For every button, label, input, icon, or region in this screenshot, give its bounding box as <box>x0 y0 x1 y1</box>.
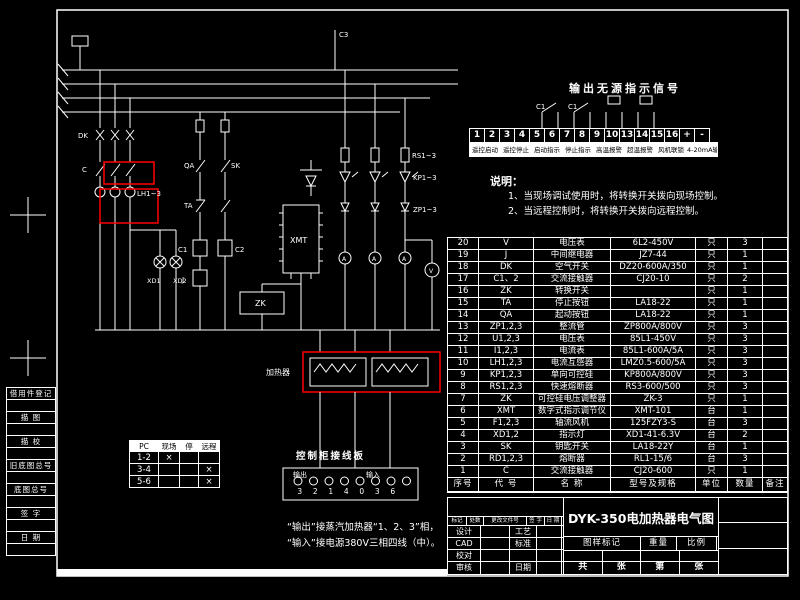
label-c2: C2 <box>235 246 244 254</box>
cell-unit: 只 <box>696 322 728 334</box>
field-audit: 审核 <box>448 562 481 574</box>
signal-contact-symbols <box>542 96 654 128</box>
title-block-row: CAD 标准 <box>448 538 563 550</box>
cell-index: 5 <box>448 418 479 430</box>
cell-name: 快速熔断器 <box>534 382 611 394</box>
cell-qty: 1 <box>728 406 763 418</box>
label-voltmeter: V <box>429 268 434 275</box>
terminal-number: 3 <box>499 128 515 143</box>
cell-index: 9 <box>448 370 479 382</box>
label-xmt: XMT <box>290 236 307 245</box>
cell-type: 85L1-450V <box>611 334 696 346</box>
signal-terminal-row: 1234567891013141516+- <box>470 128 710 143</box>
sheet-label: 张 <box>603 562 642 574</box>
signal-function-label: 遥控启动 <box>469 142 501 157</box>
signal-table-title: 输出无源指示信号 <box>540 80 710 96</box>
highlight-box-contactor <box>104 162 154 184</box>
label-c3: C3 <box>339 31 348 39</box>
terminal-number: 2 <box>308 487 324 496</box>
cell-index: 14 <box>448 310 479 322</box>
sheet-label: 共 <box>564 562 603 574</box>
cell-unit: 台 <box>696 406 728 418</box>
cell-designator: C1、2 <box>479 274 534 286</box>
cell-type: JZ7-44 <box>611 250 696 262</box>
field-process: 工艺 <box>510 526 537 537</box>
header-unit: 单位 <box>696 478 728 492</box>
zk-regulator-block <box>240 284 301 330</box>
wiring-note-line: “输入”接电源380V三相四线（中）。 <box>287 535 440 551</box>
cell-qty: 1 <box>728 298 763 310</box>
label-c1: C1 <box>178 246 187 254</box>
cell-qty: 1 <box>728 466 763 478</box>
cell-remark <box>763 382 787 394</box>
cell-qty: 3 <box>728 382 763 394</box>
wiring-note: “输出”接蒸汽加热器“1、2、3”相，“输入”接电源380V三相四线（中）。 <box>287 519 440 551</box>
cell-unit: 台 <box>696 454 728 466</box>
cell-type: ZK-3 <box>611 394 696 406</box>
cell-remark <box>763 466 787 478</box>
cell-designator: DK <box>479 262 534 274</box>
cell-remark <box>763 454 787 466</box>
header-qty: 数量 <box>728 478 763 492</box>
rev-mark: 标记 <box>448 517 467 525</box>
terminal-number: 4 <box>514 128 530 143</box>
terminal-number: 3 <box>292 487 308 496</box>
cell-unit: 只 <box>696 394 728 406</box>
revision-strip: 标记 处数 更改文件号 签 字 日 期 <box>448 517 563 526</box>
rev-count: 处数 <box>467 517 484 525</box>
cell-qty: 1 <box>728 262 763 274</box>
cell-index: 15 <box>448 298 479 310</box>
title-block-mid: DYK-350电加热器电气图 图样标记 重量 比例 共张第张 <box>564 498 719 574</box>
cell-qty: 3 <box>728 454 763 466</box>
table-row: 8 RS1,2,3 快速熔断器 RS3-600/500 只 3 <box>448 382 787 394</box>
cell-designator: RS1,2,3 <box>479 382 534 394</box>
cell-type: XMT-101 <box>611 406 696 418</box>
cell-unit: 只 <box>696 250 728 262</box>
label-rs: RS1~3 <box>412 152 436 160</box>
cell-type: LMZ0.5-600/5A <box>611 358 696 370</box>
table-row: 17 C1、2 交流接触器 CJ20-10 只 2 <box>448 274 787 286</box>
signal-function-label: 遥控停止 <box>500 142 532 157</box>
signal-function-label: 超温报警 <box>624 142 656 157</box>
cell-unit: 只 <box>696 382 728 394</box>
drawing-title: DYK-350电加热器电气图 <box>564 498 718 537</box>
cell-remark <box>763 238 787 250</box>
cell-remark <box>763 346 787 358</box>
cad-drawing-canvas: DK C LH1~3 QA TA SK C1 C2 J XD1 XD2 XMT … <box>0 0 800 600</box>
rev-sign: 签 字 <box>527 517 545 525</box>
cell-qty: 3 <box>728 418 763 430</box>
rev-date: 日 期 <box>545 517 562 525</box>
cell-type: CJ20-10 <box>611 274 696 286</box>
cell-name: 电流表 <box>534 346 611 358</box>
cell-remark <box>763 262 787 274</box>
table-row: 10 LH1,2,3 电流互感器 LMZ0.5-600/5A 只 3 <box>448 358 787 370</box>
cell-remark <box>763 418 787 430</box>
cell-index: 11 <box>448 346 479 358</box>
cell-unit: 只 <box>696 262 728 274</box>
cell-remark <box>763 310 787 322</box>
table-row: 9 KP1,2,3 单向可控硅 KP800A/800V 只 3 <box>448 370 787 382</box>
table-row: 3 SK 钥匙开关 LA18-22Y 台 1 <box>448 442 787 454</box>
title-block-blank <box>448 498 563 517</box>
cell-name: 中间继电器 <box>534 250 611 262</box>
label-xd2: XD2 <box>173 277 187 285</box>
cell-designator: F1,2,3 <box>479 418 534 430</box>
label-zp: ZP1~3 <box>413 206 437 214</box>
terminal-number: 14 <box>634 128 650 143</box>
cell-remark <box>763 286 787 298</box>
cell-type: DZ20-600A/350 <box>611 262 696 274</box>
cell-unit: 只 <box>696 286 728 298</box>
cell-index: 2 <box>448 454 479 466</box>
terminal-number: 5 <box>529 128 545 143</box>
cell-remark <box>763 442 787 454</box>
cell-remark <box>763 430 787 442</box>
cell-name: 空气开关 <box>534 262 611 274</box>
cell-qty: 3 <box>728 334 763 346</box>
cell-unit: 只 <box>696 238 728 250</box>
terminal-number: 10 <box>604 128 620 143</box>
table-row: 2 RD1,2,3 熔断器 RL1-15/6 台 3 <box>448 454 787 466</box>
control-branch <box>193 112 232 330</box>
left-margin-strip: 借用件登记 描 图 描 校 旧底图总号 底图总号 签 字 日 期 <box>6 388 56 556</box>
cell-type: LA18-22 <box>611 310 696 322</box>
terminal-number: 0 <box>354 487 370 496</box>
cell-qty: 1 <box>728 286 763 298</box>
diode-glyphs <box>300 160 322 196</box>
mark-sub-row <box>564 551 718 562</box>
table-row: 14 QA 起动按钮 LA18-22 只 1 <box>448 310 787 322</box>
cell-name: 起动按钮 <box>534 310 611 322</box>
header-index: 序号 <box>448 478 479 492</box>
scr-branch <box>339 70 439 330</box>
c3-riser <box>80 30 335 70</box>
signal-function-label: 停止指示 <box>562 142 594 157</box>
cell-index: 12 <box>448 334 479 346</box>
legend-row: 5-6 × <box>130 476 220 488</box>
cell-designator: V <box>479 238 534 250</box>
cell-designator: ZK <box>479 394 534 406</box>
cell-designator: J <box>479 250 534 262</box>
signal-function-label: 启动指示 <box>531 142 563 157</box>
cell-type: 6L2-450V <box>611 238 696 250</box>
cell-name: 交流接触器 <box>534 274 611 286</box>
note-line: 1、当现场调试使用时，将转换开关拨向现场控制。 <box>508 188 723 203</box>
cell-remark <box>763 250 787 262</box>
field-weight: 重量 <box>641 537 677 550</box>
signal-function-label: 风机联锁 <box>655 142 687 157</box>
cell-name: 交流接触器 <box>534 466 611 478</box>
registration-cross-icon <box>10 197 46 376</box>
title-block-left: 标记 处数 更改文件号 签 字 日 期 设计 工艺 CAD 标准 校对 <box>448 498 564 574</box>
cell-qty: 1 <box>728 394 763 406</box>
label-ammeter: A <box>342 256 347 263</box>
terminal-number: 1 <box>469 128 485 143</box>
table-row: 12 U1,2,3 电压表 85L1-450V 只 3 <box>448 334 787 346</box>
notes-list: 1、当现场调试使用时，将转换开关拨向现场控制。2、当远程控制时，将转换开关拨向远… <box>508 188 723 218</box>
cell-type <box>611 286 696 298</box>
signal-function-label: 高温报警 <box>593 142 625 157</box>
label-dk: DK <box>78 132 88 140</box>
table-row: 5 F1,2,3 轴流风机 125FZY3-S 台 3 <box>448 418 787 430</box>
title-block-right <box>719 498 787 574</box>
cell-qty: 1 <box>728 310 763 322</box>
cell-name: 电流互感器 <box>534 358 611 370</box>
label-contact-2: C1 <box>568 103 577 111</box>
cell-type: ZP800A/800V <box>611 322 696 334</box>
cell-qty: 1 <box>728 250 763 262</box>
cell-remark <box>763 322 787 334</box>
cell-unit: 只 <box>696 346 728 358</box>
cell-remark <box>763 358 787 370</box>
terminal-numbers: 3214036 <box>292 487 401 496</box>
label-zk: ZK <box>255 299 266 308</box>
cell-type: RL1-15/6 <box>611 454 696 466</box>
sheet-row: 共张第张 <box>564 562 718 574</box>
cell-designator: ZP1,2,3 <box>479 322 534 334</box>
label-sk: SK <box>231 162 240 170</box>
cell-index: 6 <box>448 406 479 418</box>
cell-index: 13 <box>448 322 479 334</box>
cell-type: 125FZY3-S <box>611 418 696 430</box>
terminal-number: 7 <box>559 128 575 143</box>
cell-index: 20 <box>448 238 479 250</box>
cell-type: LA18-22Y <box>611 442 696 454</box>
label-ammeter: A <box>372 256 377 263</box>
cell-remark <box>763 406 787 418</box>
rev-docno: 更改文件号 <box>484 517 527 525</box>
parts-list-header: 序号 代 号 名 称 型号及规格 单位 数量 备注 <box>448 478 787 492</box>
field-check: 校对 <box>448 550 481 561</box>
cell-designator: TA <box>479 298 534 310</box>
terminal-number: - <box>694 128 710 143</box>
cell-index: 4 <box>448 430 479 442</box>
terminal-number: + <box>679 128 695 143</box>
title-block-row: 审核 日期 <box>448 562 563 574</box>
cell-qty: 3 <box>728 370 763 382</box>
table-row: 16 ZK 转换开关 只 1 <box>448 286 787 298</box>
cell-qty: 3 <box>728 322 763 334</box>
sheet-label: 第 <box>641 562 680 574</box>
header-remark: 备注 <box>763 478 787 492</box>
table-row: 4 XD1,2 指示灯 XD1-41-6.3V 台 2 <box>448 430 787 442</box>
title-block-row: 校对 <box>448 550 563 562</box>
label-lh: LH1~3 <box>137 190 161 198</box>
note-line: 2、当远程控制时，将转换开关拨向远程控制。 <box>508 203 723 218</box>
cell-name: 电压表 <box>534 238 611 250</box>
cell-name: 熔断器 <box>534 454 611 466</box>
table-row: 15 TA 停止按钮 LA18-22 只 1 <box>448 298 787 310</box>
cell-name: 单向可控硅 <box>534 370 611 382</box>
cell-type: LA18-22 <box>611 298 696 310</box>
cell-index: 3 <box>448 442 479 454</box>
cell-designator: SK <box>479 442 534 454</box>
terminal-number: 1 <box>323 487 339 496</box>
power-bus-lines <box>58 64 458 118</box>
parts-list-table: 20 V 电压表 6L2-450V 只 3 19 J 中间继电器 JZ7-44 … <box>447 237 788 493</box>
table-row: 6 XMT 数字式指示调节仪 XMT-101 台 1 <box>448 406 787 418</box>
cell-index: 7 <box>448 394 479 406</box>
cell-remark <box>763 370 787 382</box>
signal-function-row: 遥控启动遥控停止启动指示停止指示高温报警超温报警风机联锁4-20mA输出 <box>470 142 718 157</box>
label-heater: 加热器 <box>266 367 290 377</box>
terminal-number: 9 <box>589 128 605 143</box>
label-xd1: XD1 <box>147 277 161 285</box>
label-c: C <box>82 166 87 174</box>
margin-field-label: 旧底图总号 <box>6 459 56 472</box>
cell-unit: 只 <box>696 298 728 310</box>
cell-type: CJ20-600 <box>611 466 696 478</box>
field-date: 日期 <box>510 562 537 574</box>
cell-index: 17 <box>448 274 479 286</box>
margin-field-blank <box>6 543 56 556</box>
header-designator: 代 号 <box>479 478 534 492</box>
cell-designator: I1,2,3 <box>479 346 534 358</box>
cell-designator: XD1,2 <box>479 430 534 442</box>
frame-bottom-bar <box>57 569 447 576</box>
header-name: 名 称 <box>534 478 611 492</box>
label-ta: TA <box>183 202 193 210</box>
legend-body: 1-2 × 3-4 × 5-6 × <box>130 452 220 488</box>
cell-designator: C <box>479 466 534 478</box>
terminal-number: 6 <box>544 128 560 143</box>
cell-qty: 1 <box>728 442 763 454</box>
cell-name: 停止按钮 <box>534 298 611 310</box>
terminal-number: 3 <box>370 487 386 496</box>
cell-index: 10 <box>448 358 479 370</box>
cell-name: 指示灯 <box>534 430 611 442</box>
wiring-note-line: “输出”接蒸汽加热器“1、2、3”相， <box>287 519 440 535</box>
cell-type: KP800A/800V <box>611 370 696 382</box>
cell-type: 85L1-600A/5A <box>611 346 696 358</box>
parts-list-body: 20 V 电压表 6L2-450V 只 3 19 J 中间继电器 JZ7-44 … <box>448 238 787 478</box>
cell-designator: LH1,2,3 <box>479 358 534 370</box>
cell-qty: 2 <box>728 274 763 286</box>
cell-remark <box>763 298 787 310</box>
cell-unit: 只 <box>696 310 728 322</box>
cell-name: 转换开关 <box>534 286 611 298</box>
field-scale: 比例 <box>677 537 717 550</box>
cell-unit: 只 <box>696 370 728 382</box>
changeover-legend-table: PC 现场 停 远程 1-2 × 3-4 × <box>130 440 220 488</box>
field-design: 设计 <box>448 526 481 537</box>
signal-function-label: 4-20mA输出 <box>686 142 718 157</box>
terminal-number: 4 <box>339 487 355 496</box>
cell-designator: ZK <box>479 286 534 298</box>
cell-qty: 2 <box>728 430 763 442</box>
cell-index: 19 <box>448 250 479 262</box>
cell-designator: U1,2,3 <box>479 334 534 346</box>
table-row: 18 DK 空气开关 DZ20-600A/350 只 1 <box>448 262 787 274</box>
terminal-board-title: 控制柜接线板 <box>296 448 365 462</box>
table-row: 11 I1,2,3 电流表 85L1-600A/5A 只 3 <box>448 346 787 358</box>
label-contact-1: C1 <box>536 103 545 111</box>
cell-name: 轴流风机 <box>534 418 611 430</box>
cell-index: 8 <box>448 382 479 394</box>
cell-name: 数字式指示调节仪 <box>534 406 611 418</box>
cell-unit: 只 <box>696 274 728 286</box>
cell-qty: 3 <box>728 358 763 370</box>
field-cad: CAD <box>448 538 481 549</box>
cell-designator: RD1,2,3 <box>479 454 534 466</box>
xmt-controller-block <box>279 205 323 330</box>
title-block-row: 设计 工艺 <box>448 526 563 538</box>
cell-designator: XMT <box>479 406 534 418</box>
label-ammeter: A <box>402 256 407 263</box>
table-row: 20 V 电压表 6L2-450V 只 3 <box>448 238 787 250</box>
cell-name: 整流管 <box>534 322 611 334</box>
title-block: 标记 处数 更改文件号 签 字 日 期 设计 工艺 CAD 标准 校对 <box>447 497 788 575</box>
terminal-number: 8 <box>574 128 590 143</box>
notes-heading: 说明： <box>490 173 523 189</box>
table-row: 7 ZK 可控硅电压调整器 ZK-3 只 1 <box>448 394 787 406</box>
aux-component <box>72 36 88 46</box>
cell-name: 钥匙开关 <box>534 442 611 454</box>
table-row: 1 C 交流接触器 CJ20-600 只 1 <box>448 466 787 478</box>
cell-unit: 台 <box>696 418 728 430</box>
cell-remark <box>763 394 787 406</box>
cell-unit: 台 <box>696 442 728 454</box>
label-kp: KP1~3 <box>413 174 437 182</box>
cell-qty: 3 <box>728 238 763 250</box>
sheet-label: 张 <box>680 562 719 574</box>
cell-index: 16 <box>448 286 479 298</box>
terminal-group-input: 输入 <box>366 470 380 480</box>
mark-row: 图样标记 重量 比例 <box>564 537 718 551</box>
field-drawing-mark: 图样标记 <box>564 537 641 550</box>
cell-type: XD1-41-6.3V <box>611 430 696 442</box>
cell-name: 电压表 <box>534 334 611 346</box>
table-row: 19 J 中间继电器 JZ7-44 只 1 <box>448 250 787 262</box>
label-qa: QA <box>184 162 195 170</box>
cell-type: RS3-600/500 <box>611 382 696 394</box>
table-row: 13 ZP1,2,3 整流管 ZP800A/800V 只 3 <box>448 322 787 334</box>
cell-unit: 只 <box>696 334 728 346</box>
cell-unit: 只 <box>696 358 728 370</box>
field-standard: 标准 <box>510 538 537 549</box>
header-type: 型号及规格 <box>611 478 696 492</box>
cell-name: 可控硅电压调整器 <box>534 394 611 406</box>
terminal-number: 6 <box>385 487 401 496</box>
cell-designator: QA <box>479 310 534 322</box>
cell-index: 1 <box>448 466 479 478</box>
terminal-number: 15 <box>649 128 665 143</box>
cell-index: 18 <box>448 262 479 274</box>
cell-unit: 台 <box>696 430 728 442</box>
cell-qty: 3 <box>728 346 763 358</box>
terminal-number: 2 <box>484 128 500 143</box>
terminal-number: 13 <box>619 128 635 143</box>
cell-designator: KP1,2,3 <box>479 370 534 382</box>
cell-remark <box>763 334 787 346</box>
main-feed-branch <box>95 70 135 330</box>
cell-remark <box>763 274 787 286</box>
terminal-group-output: 输出 <box>293 470 307 480</box>
terminal-number: 16 <box>664 128 680 143</box>
margin-field-label: 借用件登记 <box>6 387 56 400</box>
cell-unit: 只 <box>696 466 728 478</box>
